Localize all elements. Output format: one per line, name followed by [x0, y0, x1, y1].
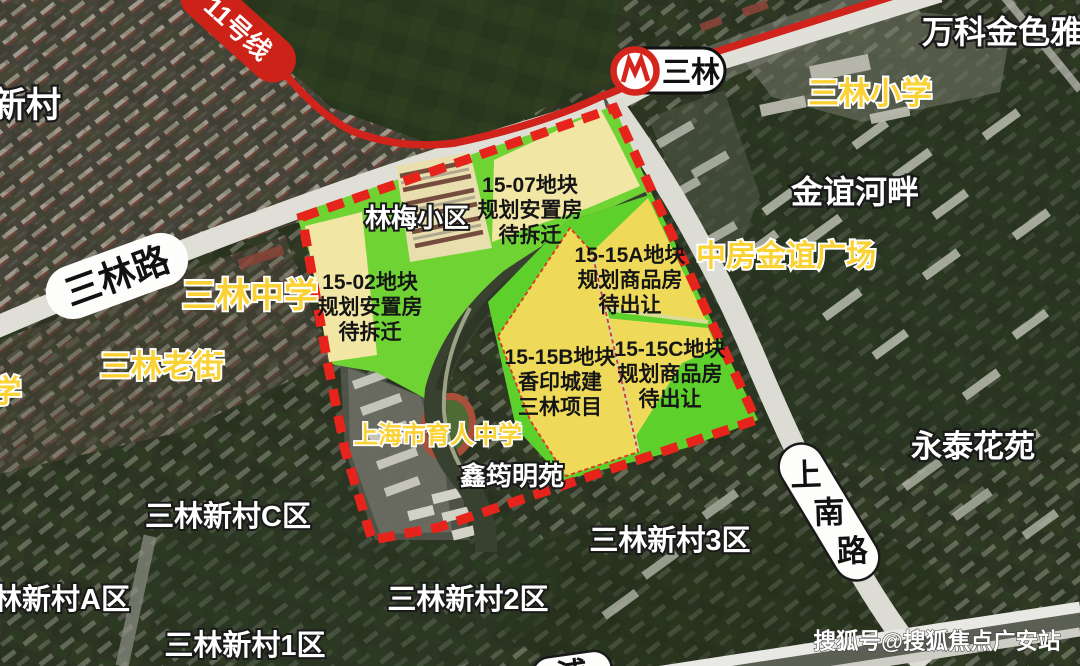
svg-text:三林: 三林: [662, 56, 720, 89]
svg-text:三林老街: 三林老街: [100, 349, 224, 384]
svg-text:待出让: 待出让: [599, 293, 662, 317]
svg-text:三林新村3区: 三林新村3区: [589, 524, 750, 557]
svg-text:上海市育人中学: 上海市育人中学: [354, 421, 522, 449]
svg-text:待出让: 待出让: [639, 387, 702, 411]
svg-text:15-02地块: 15-02地块: [322, 270, 419, 294]
svg-text:15-15C地块: 15-15C地块: [615, 337, 727, 361]
svg-text:路: 路: [836, 533, 869, 569]
svg-text:待拆迁: 待拆迁: [339, 320, 402, 344]
svg-text:15-15B地块: 15-15B地块: [505, 345, 617, 369]
svg-text:三林小学: 三林小学: [808, 76, 932, 111]
svg-text:三林新村A区: 三林新村A区: [0, 583, 130, 616]
svg-text:三林中学: 三林中学: [182, 276, 318, 315]
svg-text:三林新村1区: 三林新村1区: [164, 629, 325, 662]
svg-text:搜狐号@搜狐焦点广安站: 搜狐号@搜狐焦点广安站: [814, 628, 1061, 654]
svg-text:上: 上: [790, 457, 822, 493]
svg-text:规划商品房: 规划商品房: [578, 268, 683, 292]
svg-text:林梅小区: 林梅小区: [365, 203, 469, 233]
svg-text:三林新村C区: 三林新村C区: [145, 500, 311, 533]
svg-text:中房金谊广场: 中房金谊广场: [696, 239, 876, 273]
svg-text:金谊河畔: 金谊河畔: [790, 174, 919, 210]
svg-text:三林新村2区: 三林新村2区: [387, 583, 548, 616]
svg-text:规划安置房: 规划安置房: [478, 198, 583, 222]
svg-text:三林项目: 三林项目: [518, 395, 602, 419]
svg-text:南: 南: [813, 494, 845, 530]
svg-text:新村: 新村: [0, 86, 61, 125]
svg-text:待拆迁: 待拆迁: [499, 223, 562, 247]
svg-text:规划安置房: 规划安置房: [318, 295, 423, 319]
svg-text:规划商品房: 规划商品房: [618, 362, 723, 386]
svg-text:15-15A地块: 15-15A地块: [575, 243, 687, 267]
svg-text:万科金色雅: 万科金色雅: [922, 14, 1080, 50]
svg-text:学: 学: [0, 374, 22, 409]
svg-text:香印城建: 香印城建: [518, 370, 602, 394]
svg-text:15-07地块: 15-07地块: [482, 173, 579, 197]
svg-text:永泰花苑: 永泰花苑: [911, 429, 1035, 464]
svg-text:鑫筠明苑: 鑫筠明苑: [460, 461, 564, 491]
